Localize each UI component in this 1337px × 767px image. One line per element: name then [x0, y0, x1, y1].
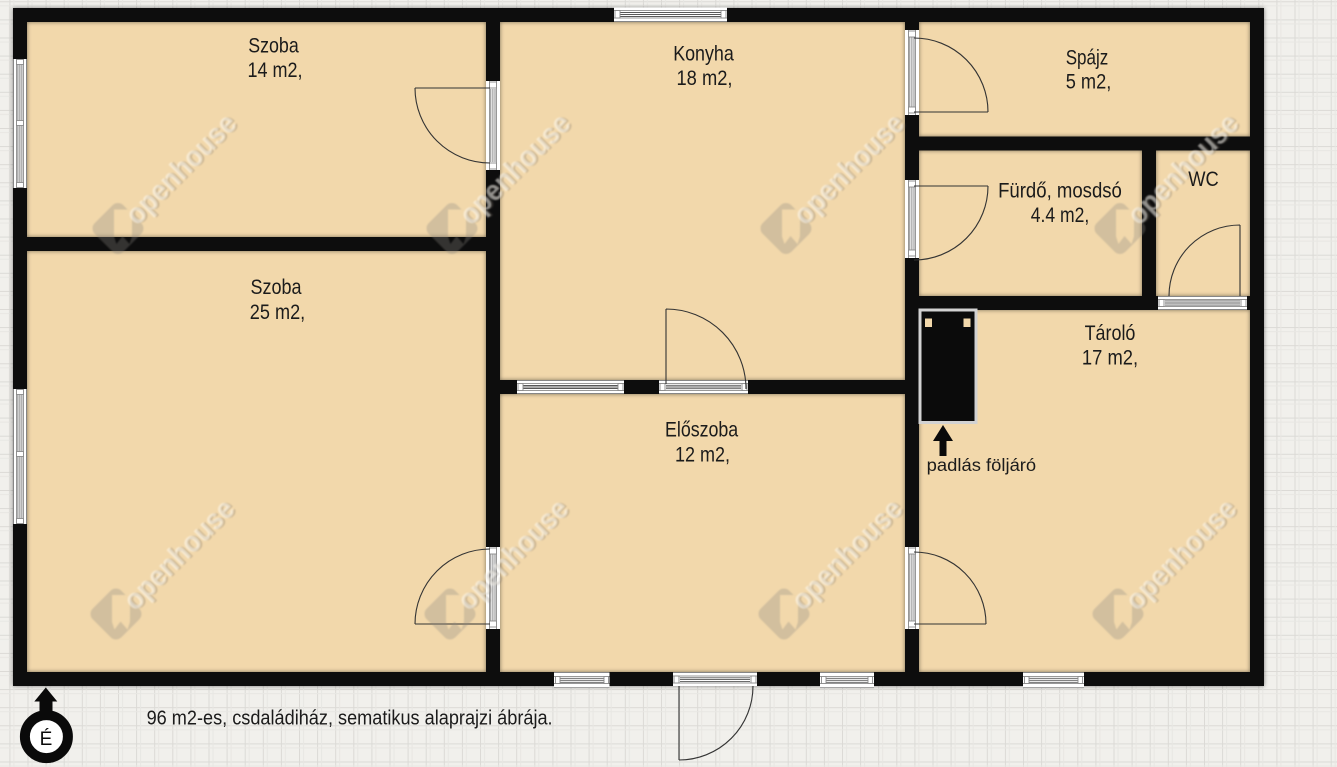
svg-text:Előszoba: Előszoba [665, 418, 738, 442]
svg-text:WC: WC [1188, 167, 1219, 191]
svg-text:96 m2-es, csdaládiház, sematik: 96 m2-es, csdaládiház, sematikus alapraj… [147, 707, 553, 730]
svg-text:Spájz: Spájz [1066, 45, 1109, 69]
svg-text:18 m2,: 18 m2, [677, 66, 733, 90]
svg-text:17 m2,: 17 m2, [1082, 346, 1138, 370]
svg-text:Konyha: Konyha [673, 41, 734, 65]
svg-text:12 m2,: 12 m2, [675, 443, 730, 467]
svg-text:14 m2,: 14 m2, [248, 58, 303, 82]
svg-text:padlás följáró: padlás följáró [927, 455, 1036, 475]
svg-text:É: É [40, 729, 53, 750]
svg-text:5 m2,: 5 m2, [1066, 69, 1112, 93]
svg-text:Fürdő, mosdsó: Fürdő, mosdsó [998, 179, 1122, 203]
svg-text:25 m2,: 25 m2, [250, 300, 305, 324]
svg-text:Tároló: Tároló [1085, 321, 1136, 345]
svg-text:Szoba: Szoba [251, 275, 302, 299]
svg-text:Szoba: Szoba [248, 34, 299, 58]
svg-text:4.4 m2,: 4.4 m2, [1031, 203, 1090, 227]
